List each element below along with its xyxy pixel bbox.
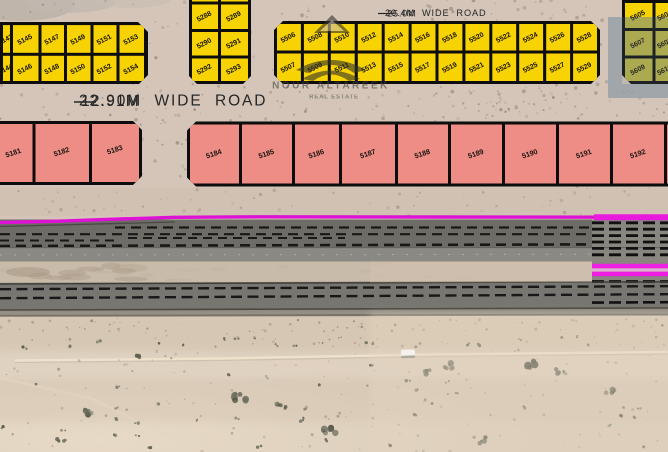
svg-text:22.90M WIDE ROAD: 22.90M WIDE ROAD — [79, 93, 267, 110]
svg-text:REAL ESTATE: REAL ESTATE — [309, 95, 359, 101]
svg-text:NOUR ALTAREEK: NOUR ALTAREEK — [272, 81, 390, 92]
svg-text:20.4M WIDE ROAD: 20.4M WIDE ROAD — [385, 8, 487, 18]
